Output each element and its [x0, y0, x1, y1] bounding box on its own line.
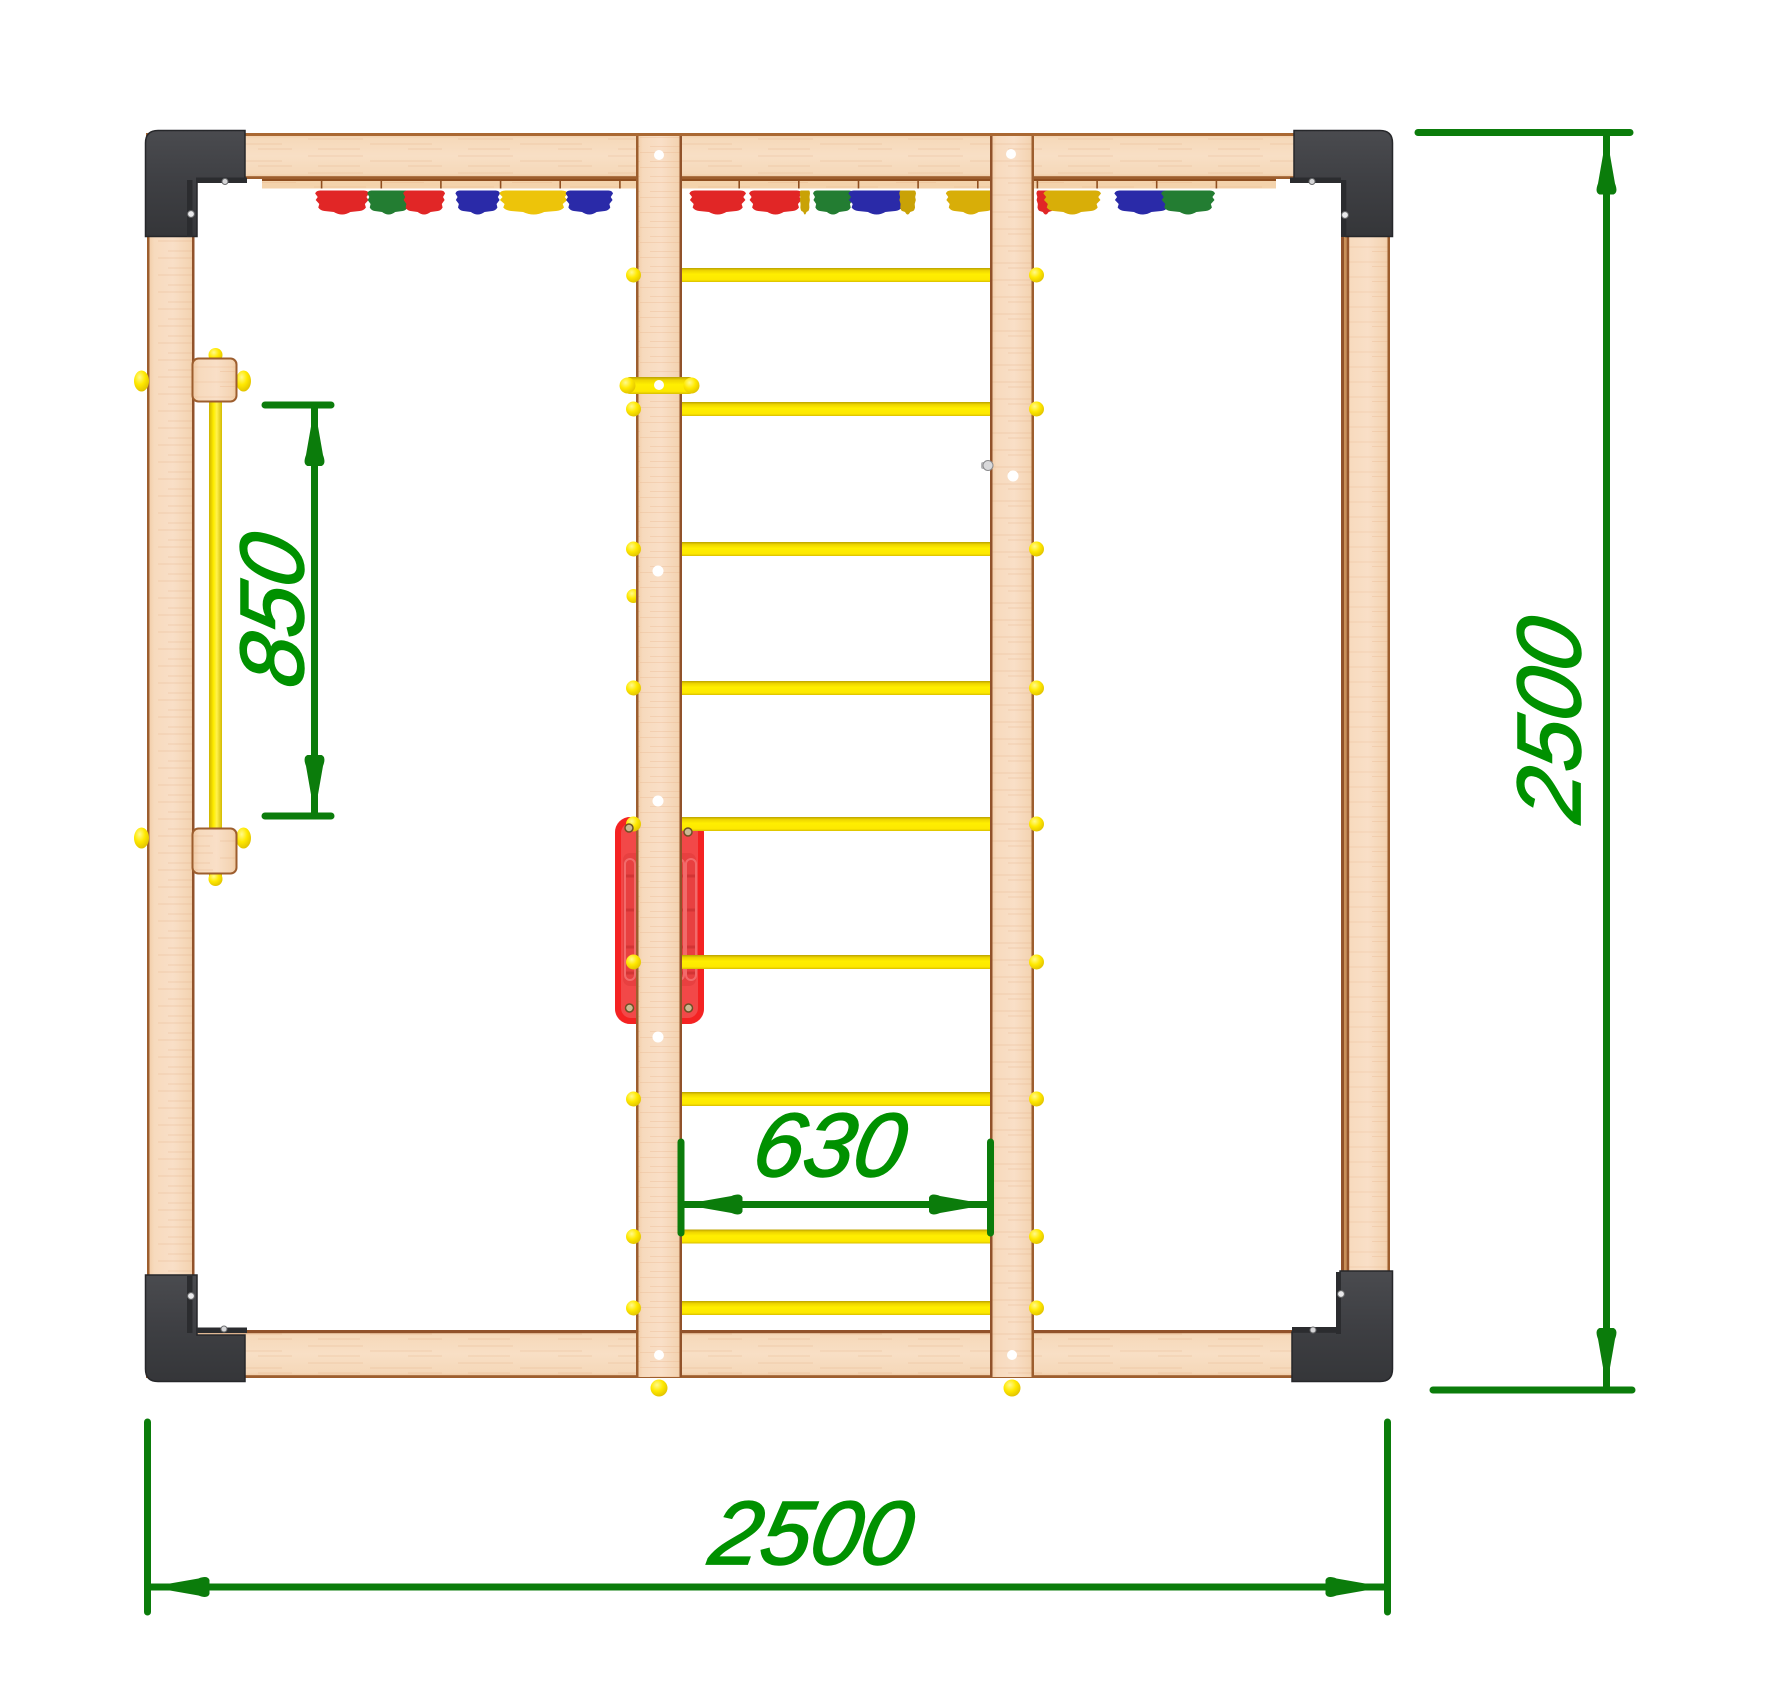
svg-text:2500: 2500	[702, 1484, 921, 1584]
svg-text:2500: 2500	[1500, 610, 1600, 829]
svg-text:630: 630	[746, 1096, 914, 1196]
svg-text:850: 850	[223, 526, 323, 694]
